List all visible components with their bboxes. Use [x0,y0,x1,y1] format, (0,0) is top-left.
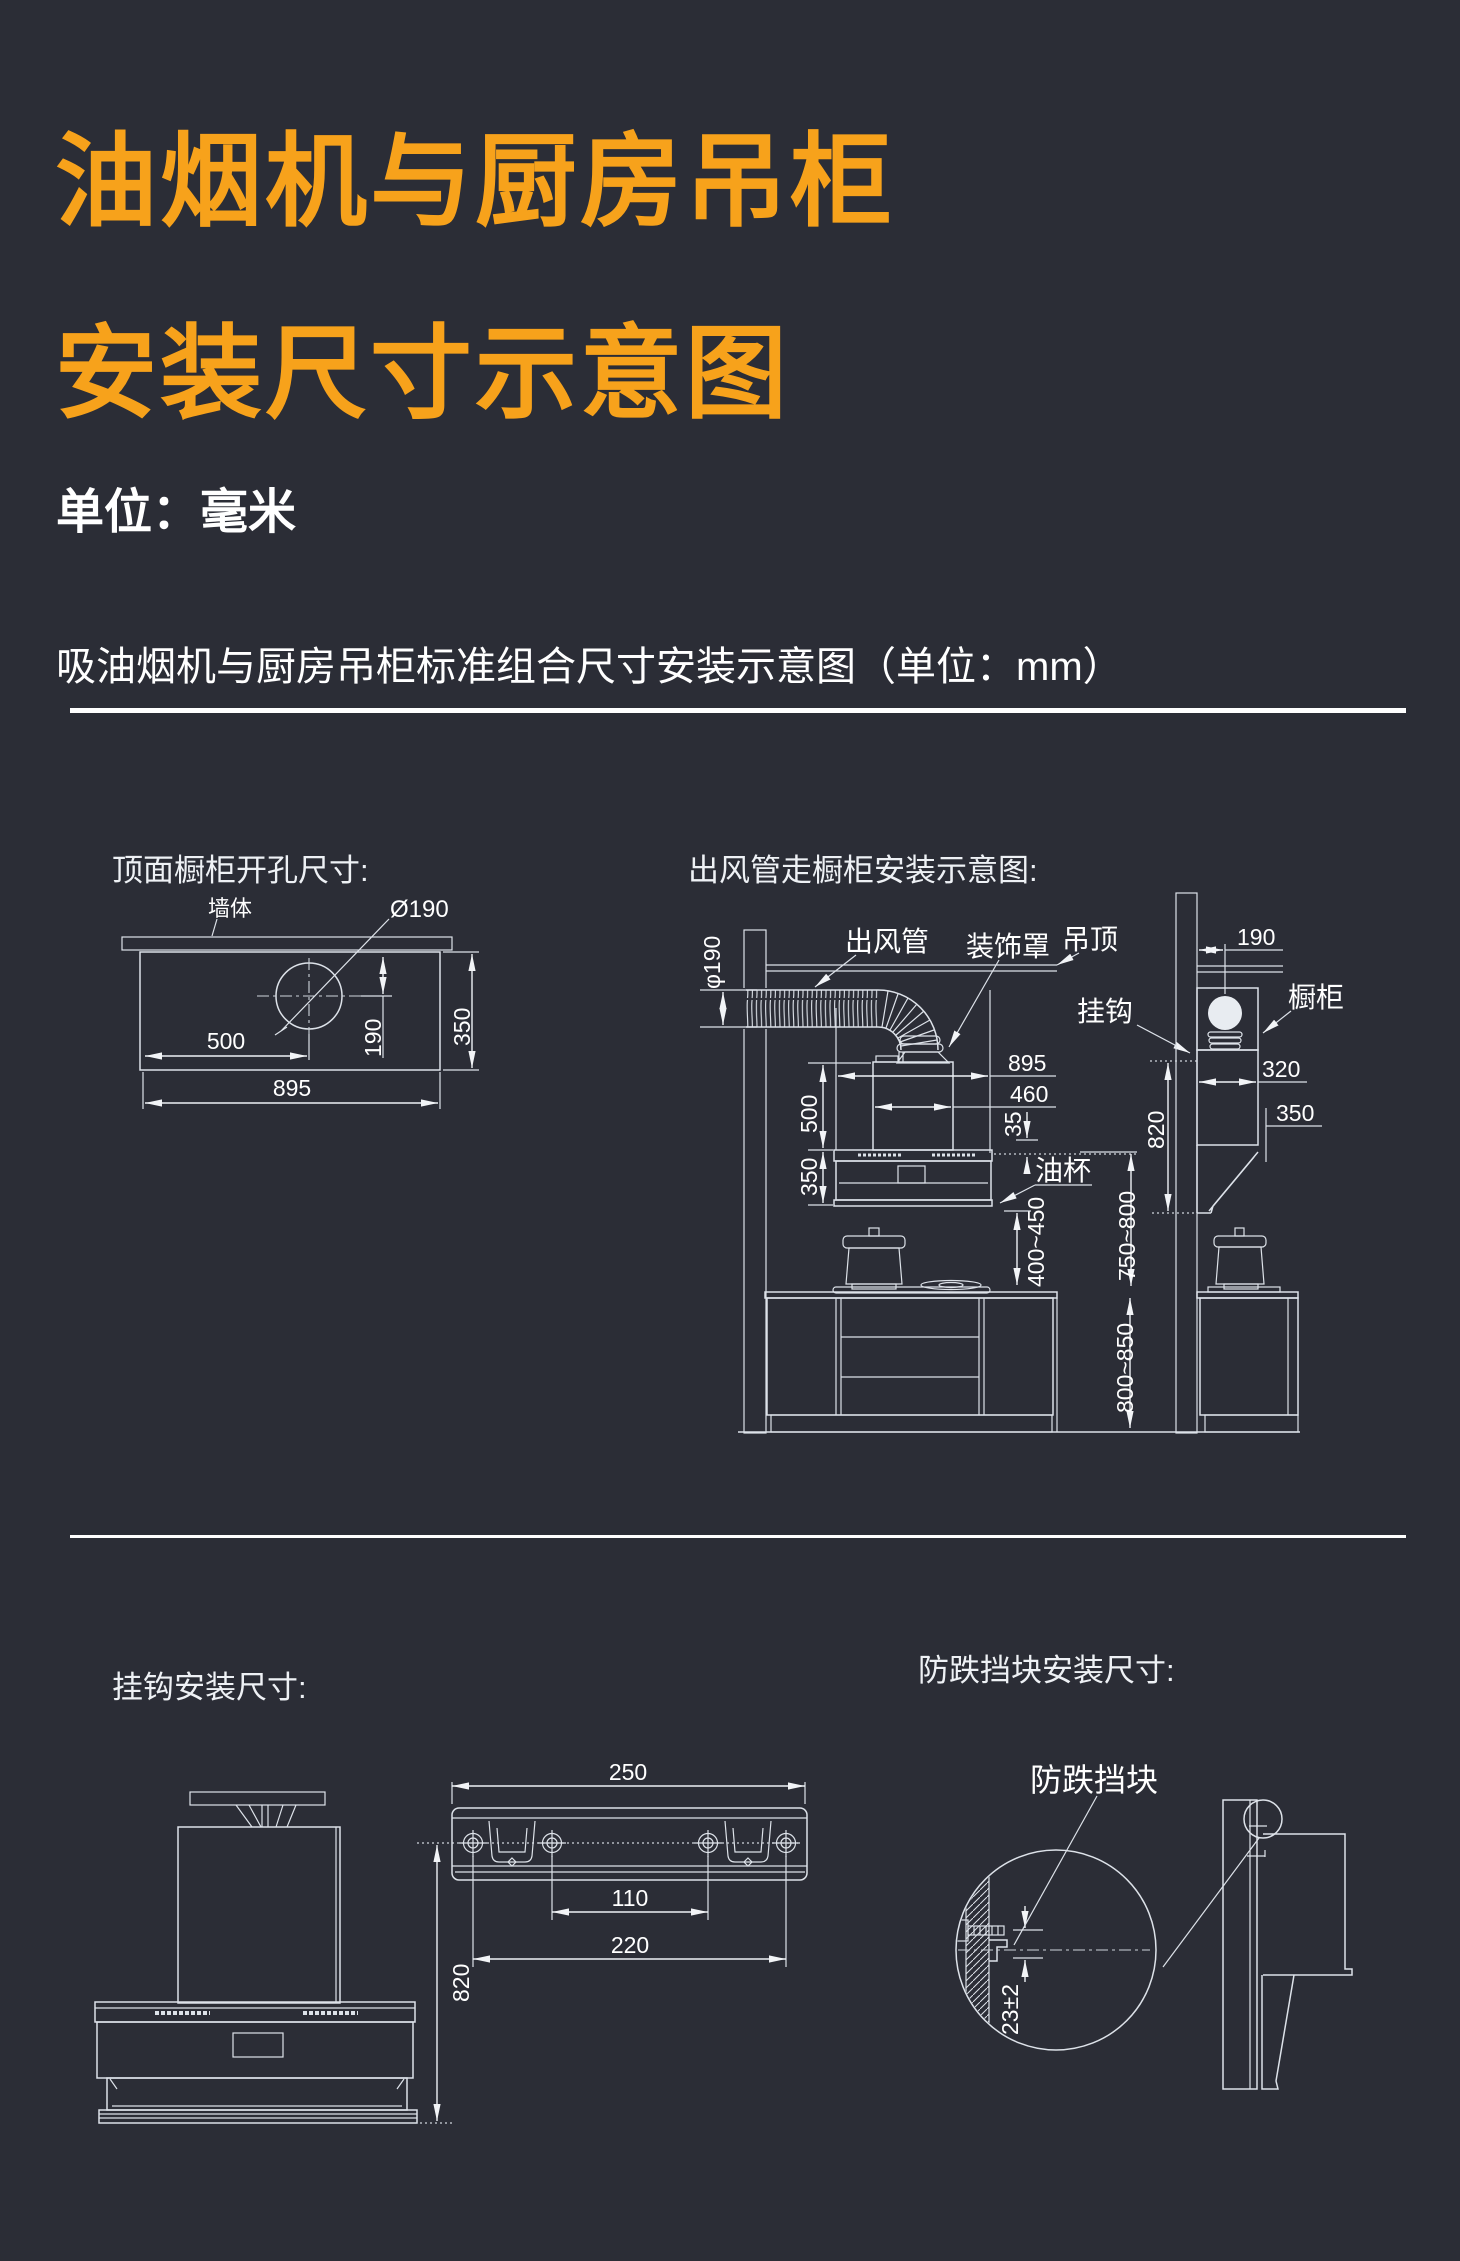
cabinet-label: 橱柜 [1288,982,1344,1013]
dim-250: 250 [609,1759,647,1785]
dim-110: 110 [612,1885,649,1911]
duct-drawing-side-view: 橱柜 190 320 350 820 750~800 800~850 [1080,893,1344,1433]
cover-label: 装饰罩 [966,931,1050,962]
duct-title: 出风管走橱柜安装示意图: [688,845,1038,890]
dim-895: 895 [273,1075,311,1101]
unit-note: 单位：毫米 [56,472,296,542]
dim-350: 350 [449,1008,475,1046]
dim-350-front: 350 [796,1158,822,1196]
block-title: 防跌挡块安装尺寸: [918,1645,1175,1690]
wall-label: 墙体 [208,896,252,921]
dim-190: 190 [1237,924,1275,950]
oilcup-label: 油杯 [1035,1155,1091,1186]
dim-400-450: 400~450 [1023,1197,1049,1287]
dim-820: 820 [448,1964,474,2002]
block-label: 防跌挡块 [1030,1762,1158,1798]
dim-820: 820 [1143,1111,1169,1149]
dim-895: 895 [1008,1050,1046,1076]
combo-heading: 吸油烟机与厨房吊柜标准组合尺寸安装示意图（单位：mm） [56,634,1123,692]
dim-500: 500 [207,1028,245,1054]
page-title-line1: 油烟机与厨房吊柜 [55,100,895,247]
duct-label: 出风管 [845,926,929,957]
top-hole-drawing: 墙体 Ø190 500 895 190 350 [122,896,479,1109]
dim-350-side: 350 [1276,1100,1314,1126]
top-hole-title: 顶面橱柜开孔尺寸: [112,845,369,890]
dim-460: 460 [1010,1081,1048,1107]
dim-phi190: φ190 [699,936,725,989]
heading-underline [70,708,1406,713]
dim-23: 23±2 [997,1984,1023,2035]
section-divider [70,1535,1406,1538]
dim-800-850: 800~850 [1112,1323,1138,1413]
hook-install-drawing: 820 [95,1759,807,2123]
hole-dia-label: Ø190 [390,896,449,923]
dim-320: 320 [1262,1056,1300,1082]
hook-title: 挂钩安装尺寸: [112,1662,307,1707]
dim-500: 500 [796,1095,822,1133]
dim-190: 190 [360,1019,386,1057]
hook-label: 挂钩 [1077,996,1133,1027]
anti-fall-block-drawing: 防跌挡块 23±2 [956,1762,1352,2089]
page: 墙体 Ø190 500 895 190 350 [0,0,1460,2261]
ceiling-label: 吊顶 [1062,924,1118,955]
duct-drawing-front-view: 出风管 装饰罩 吊顶 挂钩 油杯 φ190 895 460 35 500 350… [699,924,1300,1433]
page-title-line2: 安装尺寸示意图 [55,292,790,439]
dim-35: 35 [1000,1111,1026,1137]
dim-220: 220 [611,1932,649,1958]
dim-750-800: 750~800 [1114,1191,1140,1281]
